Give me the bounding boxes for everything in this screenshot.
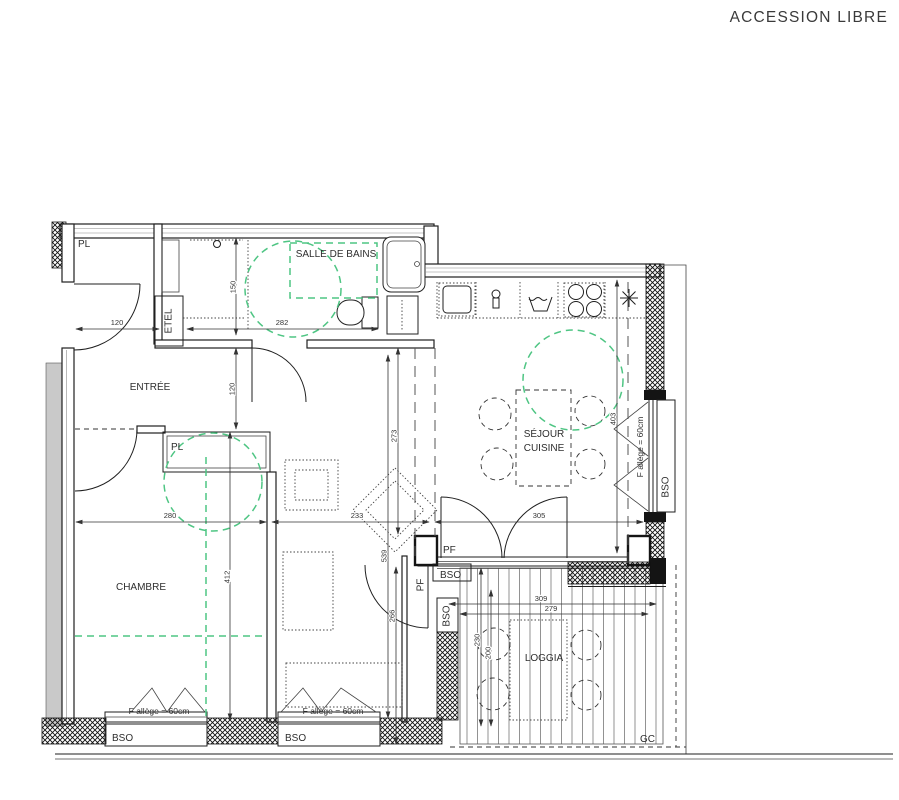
wall-east-hatch-upper <box>646 264 664 390</box>
label-entry: ENTRÉE <box>130 380 171 393</box>
label-bso-window-left: BSO <box>112 733 133 744</box>
bedroom-door-arc <box>75 429 137 491</box>
dim-bathroom-depth: 150 <box>229 281 238 294</box>
post-east-lower <box>644 512 666 522</box>
label-gc: GC <box>640 734 655 745</box>
label-allege-east: F allège = 60cm <box>635 417 645 478</box>
floor-plan: ACCESSION LIBRE <box>0 0 899 800</box>
furniture-square <box>285 460 338 510</box>
pf-door-right-arc <box>504 497 567 558</box>
wall-kitchen-top <box>424 264 660 277</box>
post-east-upper <box>644 390 666 400</box>
dim-loggia-depth-inner: 200 <box>484 647 493 660</box>
wall-bottom-hatch-2 <box>207 718 278 744</box>
label-bedroom: CHAMBRE <box>116 582 166 593</box>
label-closet-top: PL <box>78 239 91 250</box>
wall-bottom-hatch-3 <box>380 718 442 744</box>
column-icon <box>214 241 221 248</box>
extractor-snowflake-icon <box>620 289 638 307</box>
label-bso-window-mid: BSO <box>285 733 306 744</box>
burner-4 <box>587 302 602 317</box>
dim-hall-depth: 539 <box>380 550 389 563</box>
post-pf-west <box>415 536 437 565</box>
label-pf-living: PF <box>443 545 456 556</box>
bathroom-door-arc <box>252 348 306 402</box>
label-bso-hall-top: BSO <box>440 570 461 581</box>
wash-basin-icon <box>529 297 552 311</box>
dim-pf-to-edge: 266 <box>388 610 397 623</box>
dim-hall-width: 233 <box>351 511 364 520</box>
label-bso-hall-side: BSO <box>442 605 453 626</box>
burner-2 <box>587 285 602 300</box>
dim-loggia-width-inner: 279 <box>545 604 558 613</box>
dim-entry-depth: 120 <box>228 383 237 396</box>
wall-bath-south-a <box>155 340 252 348</box>
wall-hall-hatch <box>437 632 458 720</box>
label-allege-left: F allège = 60cm <box>129 706 190 716</box>
wall-loggia-north-hatch <box>568 562 650 584</box>
post-pf-east <box>628 536 650 565</box>
furniture-rect <box>283 552 333 630</box>
wall-bath-south-b <box>307 340 434 348</box>
dim-bedroom-depth: 412 <box>223 571 232 584</box>
label-duct: ETEL <box>164 308 175 333</box>
dim-living-depth: 273 <box>390 430 399 443</box>
dimension-labels: 120 282 150 120 412 280 233 305 273 539 … <box>111 281 618 660</box>
plan-title: ACCESSION LIBRE <box>730 9 888 26</box>
chair <box>575 449 605 479</box>
chair <box>481 448 513 480</box>
sink <box>443 286 471 313</box>
kitchen-counter <box>437 282 646 318</box>
dim-bathroom-width: 282 <box>276 318 289 327</box>
dim-door-entry: 120 <box>111 318 124 327</box>
label-bso-east: BSO <box>661 476 672 497</box>
label-loggia: LOGGIA <box>525 653 564 664</box>
label-pf-hall: PF <box>416 579 427 592</box>
label-living-1: SÉJOUR <box>524 427 565 440</box>
wall-jog <box>424 226 438 268</box>
dim-bedroom-width: 280 <box>164 511 177 520</box>
label-bathroom: SALLE DE BAINS <box>296 249 377 260</box>
chair <box>479 398 511 430</box>
entrance-door-arc <box>74 284 140 350</box>
wall-hall-east <box>402 556 407 722</box>
hall-door-arc <box>365 565 428 628</box>
wall-bedroom-east <box>267 472 276 722</box>
wall-bedroom-north <box>137 426 165 433</box>
dim-living-width: 305 <box>533 511 546 520</box>
burner-3 <box>569 302 584 317</box>
dim-loggia-depth-outer: 230 <box>473 634 482 647</box>
wall-left-upper <box>62 224 74 282</box>
allege-zone <box>286 663 402 707</box>
washbasin <box>387 296 418 334</box>
adjacent-building-strip <box>46 363 63 726</box>
dim-loggia-width-outer: 309 <box>535 594 548 603</box>
sink-unit <box>439 283 475 316</box>
wall-left-lower <box>62 348 74 724</box>
wall-bottom-hatch-1 <box>42 718 106 744</box>
label-closet-bedroom: PL <box>171 442 184 453</box>
label-living-2: CUISINE <box>524 443 565 454</box>
dim-east-window: 403 <box>609 413 618 426</box>
toilet-bowl <box>337 300 364 325</box>
faucet-icon <box>492 290 500 298</box>
post-east-corner <box>650 558 666 584</box>
label-allege-mid: F allège = 60cm <box>303 706 364 716</box>
shelf <box>162 240 179 292</box>
burner-1 <box>569 285 584 300</box>
wall-top <box>60 224 434 238</box>
bathtub <box>383 237 425 292</box>
